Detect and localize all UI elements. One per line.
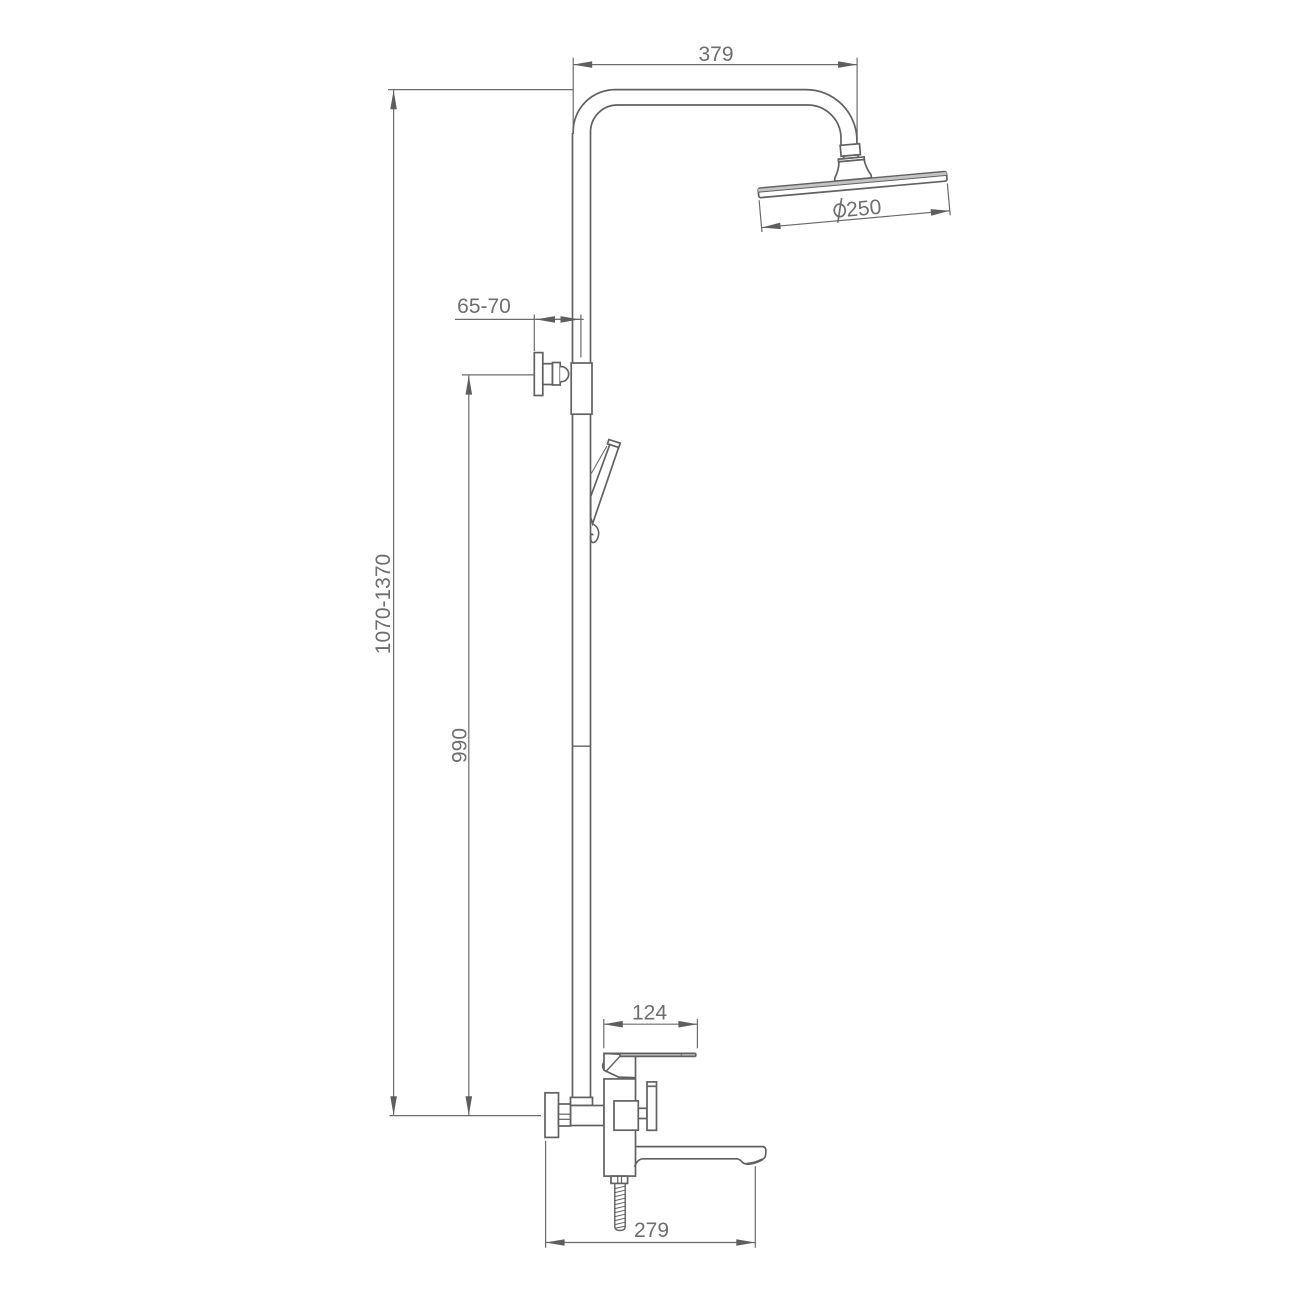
svg-text:279: 279 bbox=[634, 1219, 669, 1242]
svg-text:65-70: 65-70 bbox=[457, 295, 511, 318]
svg-text:990: 990 bbox=[449, 728, 472, 763]
svg-text:124: 124 bbox=[632, 1002, 667, 1025]
svg-text:379: 379 bbox=[698, 43, 733, 66]
svg-text:1070-1370: 1070-1370 bbox=[372, 554, 395, 654]
svg-text:250: 250 bbox=[845, 196, 882, 222]
